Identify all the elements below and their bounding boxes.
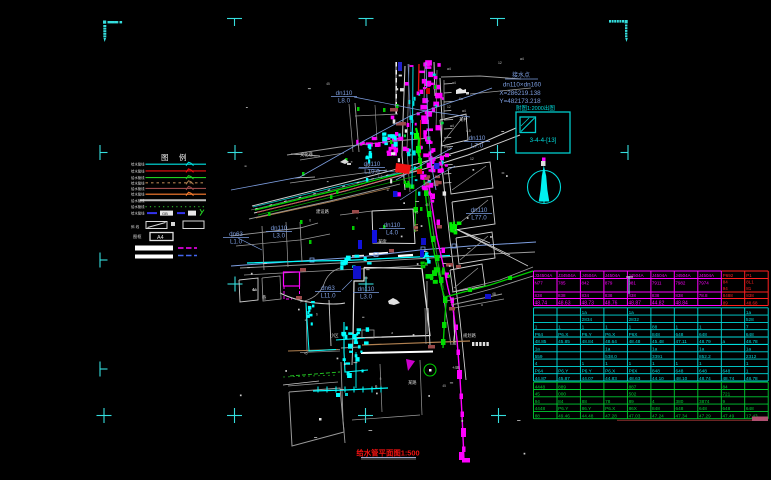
svg-text:7911: 7911 (652, 281, 662, 286)
svg-text:838: 838 (605, 293, 613, 298)
svg-text:例: 例 (179, 152, 187, 162)
svg-text:88: 88 (582, 399, 588, 404)
svg-text:巷: 巷 (262, 295, 267, 300)
svg-text:dn110: dn110 (336, 90, 353, 97)
svg-text:47.03: 47.03 (629, 414, 641, 419)
svg-text:1: 1 (676, 325, 679, 330)
svg-text:J34504A: J34504A (535, 273, 553, 278)
svg-text:648: 648 (746, 406, 754, 411)
svg-text:838: 838 (535, 293, 543, 298)
svg-text:给水管线: 给水管线 (131, 175, 145, 180)
svg-text:48.63: 48.63 (629, 376, 641, 381)
svg-text:838: 838 (558, 293, 566, 298)
svg-text:842: 842 (581, 281, 589, 286)
svg-text:000: 000 (558, 392, 566, 397)
svg-text:给水管平面图1:500: 给水管平面图1:500 (356, 448, 419, 457)
svg-text:J4504A: J4504A (652, 273, 667, 278)
svg-text:给水管线: 给水管线 (131, 192, 145, 197)
svg-text:1a: 1a (582, 310, 588, 315)
svg-text:648: 648 (722, 406, 730, 411)
svg-text:48.85: 48.85 (535, 339, 547, 344)
svg-text:45: 45 (415, 211, 419, 215)
svg-text:12: 12 (447, 147, 451, 151)
svg-text:648: 648 (699, 332, 707, 337)
svg-text:J34504A: J34504A (558, 273, 576, 278)
svg-text:P6.X: P6.X (605, 369, 616, 374)
svg-text:47.49: 47.49 (722, 414, 734, 419)
svg-text:a4: a4 (462, 109, 466, 113)
svg-text:94: 94 (723, 286, 729, 291)
svg-text:852.2: 852.2 (699, 354, 711, 359)
svg-text:889: 889 (558, 384, 566, 389)
svg-text:L11.0: L11.0 (320, 293, 336, 300)
svg-text:838: 838 (746, 293, 754, 298)
svg-text:848: 848 (652, 332, 660, 337)
svg-text:dn110: dn110 (358, 286, 375, 293)
svg-text:45.48: 45.48 (652, 339, 664, 344)
svg-text:4: 4 (424, 334, 426, 338)
svg-text:某路: 某路 (408, 379, 417, 386)
svg-text:88: 88 (652, 325, 658, 330)
svg-text:48.74: 48.74 (722, 376, 734, 381)
svg-text:L7.0: L7.0 (471, 143, 484, 150)
svg-text:P6.Y: P6.Y (582, 332, 593, 337)
svg-text:380: 380 (676, 399, 684, 404)
svg-text:某街: 某街 (378, 238, 387, 245)
svg-text:+48: +48 (452, 365, 460, 370)
svg-text:887: 887 (629, 384, 637, 389)
svg-text:3391: 3391 (652, 354, 663, 359)
svg-text:1: 1 (746, 361, 749, 366)
svg-text:721: 721 (722, 392, 730, 397)
svg-text:45: 45 (442, 384, 446, 388)
svg-text:48.74: 48.74 (699, 376, 711, 381)
svg-text:P6.Y: P6.Y (558, 406, 569, 411)
svg-text:648: 648 (699, 369, 707, 374)
svg-text:4: 4 (356, 216, 358, 220)
svg-text:1: 1 (699, 325, 702, 330)
svg-text:1: 1 (629, 361, 632, 366)
svg-text:L8.0: L8.0 (338, 98, 351, 105)
svg-text:规划路: 规划路 (463, 332, 477, 339)
svg-text:48.10: 48.10 (676, 376, 688, 381)
svg-text:给水管线: 给水管线 (131, 180, 145, 185)
svg-text:86X: 86X (629, 406, 638, 411)
svg-text:45: 45 (535, 392, 541, 397)
svg-text:48.64: 48.64 (605, 339, 617, 344)
svg-text:48.76: 48.76 (605, 300, 618, 306)
svg-text:建设路: 建设路 (316, 208, 330, 215)
svg-text:12: 12 (498, 61, 502, 65)
svg-text:a: a (380, 376, 382, 380)
svg-text:P64: P64 (535, 369, 544, 374)
svg-text:dn110: dn110 (271, 225, 288, 232)
svg-text:47.34: 47.34 (676, 414, 688, 419)
svg-text:dn63: dn63 (229, 231, 243, 238)
svg-text:1: 1 (746, 369, 749, 374)
svg-text:J4504A: J4504A (605, 273, 620, 278)
svg-text:1: 1 (629, 325, 632, 330)
svg-text:648: 648 (746, 332, 754, 337)
svg-text:78: 78 (605, 399, 611, 404)
svg-text:44.82: 44.82 (652, 300, 665, 306)
svg-text:a4: a4 (450, 124, 454, 128)
svg-text:P6X: P6X (629, 332, 639, 337)
svg-text:小区: 小区 (330, 332, 339, 339)
svg-text:45.85: 45.85 (558, 339, 570, 344)
svg-text:89: 89 (629, 399, 635, 404)
svg-text:a: a (722, 339, 725, 344)
svg-text:2834: 2834 (582, 317, 593, 322)
svg-text:48.48: 48.48 (629, 339, 641, 344)
svg-text:47.11: 47.11 (676, 339, 688, 344)
svg-text:4.5: 4.5 (466, 129, 471, 133)
svg-text:3874: 3874 (699, 399, 710, 404)
svg-text:7982: 7982 (675, 281, 686, 286)
svg-text:1: 1 (535, 325, 538, 330)
svg-text:接水点: 接水点 (512, 71, 530, 79)
svg-text:J4504A: J4504A (699, 273, 714, 278)
svg-text:44.07: 44.07 (582, 376, 594, 381)
svg-text:7: 7 (746, 325, 749, 330)
svg-text:648: 648 (676, 406, 684, 411)
svg-text:L4.0: L4.0 (386, 230, 399, 237)
svg-text:P64: P64 (535, 332, 544, 337)
svg-text:N77: N77 (535, 281, 544, 286)
svg-text:47.24: 47.24 (652, 414, 664, 419)
svg-text:1: 1 (699, 361, 702, 366)
svg-text:48: 48 (492, 292, 496, 296)
svg-text:P6.Y: P6.Y (558, 369, 569, 374)
svg-text:49.46: 49.46 (558, 414, 570, 419)
svg-text:dn110: dn110 (469, 135, 486, 142)
svg-text:3-4-4-[13]: 3-4-4-[13] (530, 137, 557, 144)
svg-text:528: 528 (746, 317, 754, 322)
svg-text:48.84: 48.84 (582, 339, 594, 344)
svg-text:a4: a4 (447, 67, 451, 71)
svg-text:648: 648 (722, 369, 730, 374)
svg-text:X=286219.138: X=286219.138 (499, 90, 541, 97)
svg-text:J4504A: J4504A (581, 273, 596, 278)
svg-text:89: 89 (723, 300, 729, 305)
svg-text:2832: 2832 (629, 317, 640, 322)
svg-text:a4: a4 (452, 81, 456, 85)
svg-text:文化巷: 文化巷 (300, 151, 314, 158)
svg-text:P6.X: P6.X (558, 332, 569, 337)
svg-text:给水管线: 给水管线 (131, 211, 145, 216)
svg-text:1a: 1a (535, 347, 541, 352)
svg-text:4448: 4448 (535, 384, 546, 389)
svg-text:44.87: 44.87 (535, 376, 547, 381)
svg-text:1: 1 (605, 325, 608, 330)
svg-text:94: 94 (535, 399, 541, 404)
svg-text:48.74: 48.74 (535, 300, 548, 306)
svg-text:838: 838 (652, 293, 660, 298)
svg-text:8488: 8488 (723, 293, 734, 298)
svg-text:斜 线: 斜 线 (131, 224, 140, 229)
svg-text:P6.X: P6.X (605, 332, 616, 337)
svg-text:45: 45 (326, 82, 330, 86)
svg-text:Y=482173.218: Y=482173.218 (499, 98, 541, 105)
svg-text:785: 785 (558, 281, 566, 286)
svg-text:给水管线: 给水管线 (131, 198, 145, 203)
svg-text:84: 84 (723, 280, 729, 285)
svg-text:848: 848 (652, 369, 660, 374)
svg-text:81: 81 (746, 286, 752, 291)
svg-text:12: 12 (447, 105, 451, 109)
svg-text:48.87: 48.87 (628, 300, 641, 306)
svg-text:648: 648 (699, 406, 707, 411)
svg-text:4448: 4448 (535, 406, 546, 411)
svg-text:48.73: 48.73 (581, 300, 594, 306)
svg-text:给水管线: 给水管线 (131, 162, 145, 167)
svg-text:48.84: 48.84 (675, 300, 688, 306)
svg-text:648: 648 (676, 369, 684, 374)
svg-text:P6.X: P6.X (605, 406, 616, 411)
svg-text:1a: 1a (699, 347, 705, 352)
svg-text:559: 559 (535, 354, 543, 359)
svg-text:1: 1 (582, 361, 585, 366)
svg-text:48.68: 48.68 (746, 300, 758, 305)
svg-text:1: 1 (652, 361, 655, 366)
svg-text:P692: P692 (723, 273, 734, 278)
svg-text:47.29: 47.29 (699, 414, 711, 419)
svg-text:4: 4 (652, 399, 655, 404)
svg-text:1: 1 (676, 361, 679, 366)
svg-text:1: 1 (558, 325, 561, 330)
svg-text:1a: 1a (652, 347, 658, 352)
svg-text:1a: 1a (605, 347, 611, 352)
svg-text:P6.Y: P6.Y (582, 369, 593, 374)
svg-text:838: 838 (675, 293, 683, 298)
svg-text:848: 848 (652, 406, 660, 411)
svg-text:44.10: 44.10 (652, 376, 664, 381)
svg-text:48.63: 48.63 (558, 300, 571, 306)
svg-text:给水管线: 给水管线 (131, 168, 145, 173)
svg-text:45: 45 (304, 351, 308, 355)
svg-text:7974: 7974 (699, 281, 710, 286)
svg-text:dn110: dn110 (471, 207, 488, 214)
svg-text:9: 9 (722, 399, 725, 404)
svg-text:6: 6 (316, 313, 318, 317)
svg-text:1: 1 (582, 325, 585, 330)
svg-text:44.83: 44.83 (605, 376, 617, 381)
svg-text:45.87: 45.87 (558, 376, 570, 381)
svg-text:dn63: dn63 (321, 285, 335, 292)
svg-text:84: 84 (722, 384, 728, 389)
svg-text:P6X: P6X (629, 369, 639, 374)
svg-text:538.0: 538.0 (605, 354, 617, 359)
svg-text:879: 879 (605, 281, 613, 286)
svg-text:1a: 1a (746, 347, 752, 352)
svg-text:45: 45 (425, 203, 429, 207)
svg-text:a: a (481, 303, 483, 307)
svg-text:GB: GB (162, 211, 168, 216)
svg-text:给水管线: 给水管线 (131, 186, 145, 191)
svg-text:L1.0: L1.0 (230, 239, 243, 246)
svg-text:834: 834 (581, 293, 589, 298)
svg-text:L77.0: L77.0 (471, 215, 487, 222)
svg-text:给水管线: 给水管线 (131, 204, 145, 209)
svg-text:dn110×dn160: dn110×dn160 (503, 82, 542, 89)
svg-text:86.Y: 86.Y (582, 406, 593, 411)
svg-text:某村: 某村 (459, 116, 468, 123)
svg-text:a: a (391, 331, 393, 335)
svg-text:图: 图 (161, 153, 169, 162)
svg-text:12: 12 (470, 157, 474, 161)
svg-text:78.8: 78.8 (699, 293, 708, 298)
svg-text:84: 84 (558, 399, 564, 404)
svg-text:44.48: 44.48 (582, 414, 594, 419)
svg-text:1: 1 (605, 361, 608, 366)
svg-text:48.79: 48.79 (699, 339, 711, 344)
svg-text:502: 502 (629, 392, 637, 397)
svg-text:dn110: dn110 (364, 161, 381, 168)
svg-text:1a: 1a (746, 310, 752, 315)
svg-text:48.78: 48.78 (746, 376, 758, 381)
svg-text:48.78: 48.78 (746, 339, 758, 344)
svg-text:1a: 1a (629, 310, 635, 315)
svg-text:88: 88 (535, 414, 541, 419)
svg-text:47.28: 47.28 (605, 414, 617, 419)
svg-text:附图1:2000出图: 附图1:2000出图 (516, 104, 555, 112)
svg-text:648: 648 (676, 332, 684, 337)
svg-text:6: 6 (309, 219, 311, 223)
svg-text:L3.0: L3.0 (360, 294, 373, 301)
svg-text:a4: a4 (520, 57, 524, 61)
svg-text:A4: A4 (157, 235, 164, 241)
svg-text:P1: P1 (746, 273, 752, 278)
svg-text:dn110: dn110 (384, 222, 401, 229)
svg-text:L3.0: L3.0 (273, 233, 286, 240)
svg-text:8L1: 8L1 (746, 280, 754, 285)
svg-text:4: 4 (535, 361, 538, 366)
svg-text:4a: 4a (252, 287, 257, 292)
svg-text:J4504A: J4504A (675, 273, 690, 278)
svg-text:2312: 2312 (746, 354, 757, 359)
svg-text:图框: 图框 (133, 233, 142, 240)
